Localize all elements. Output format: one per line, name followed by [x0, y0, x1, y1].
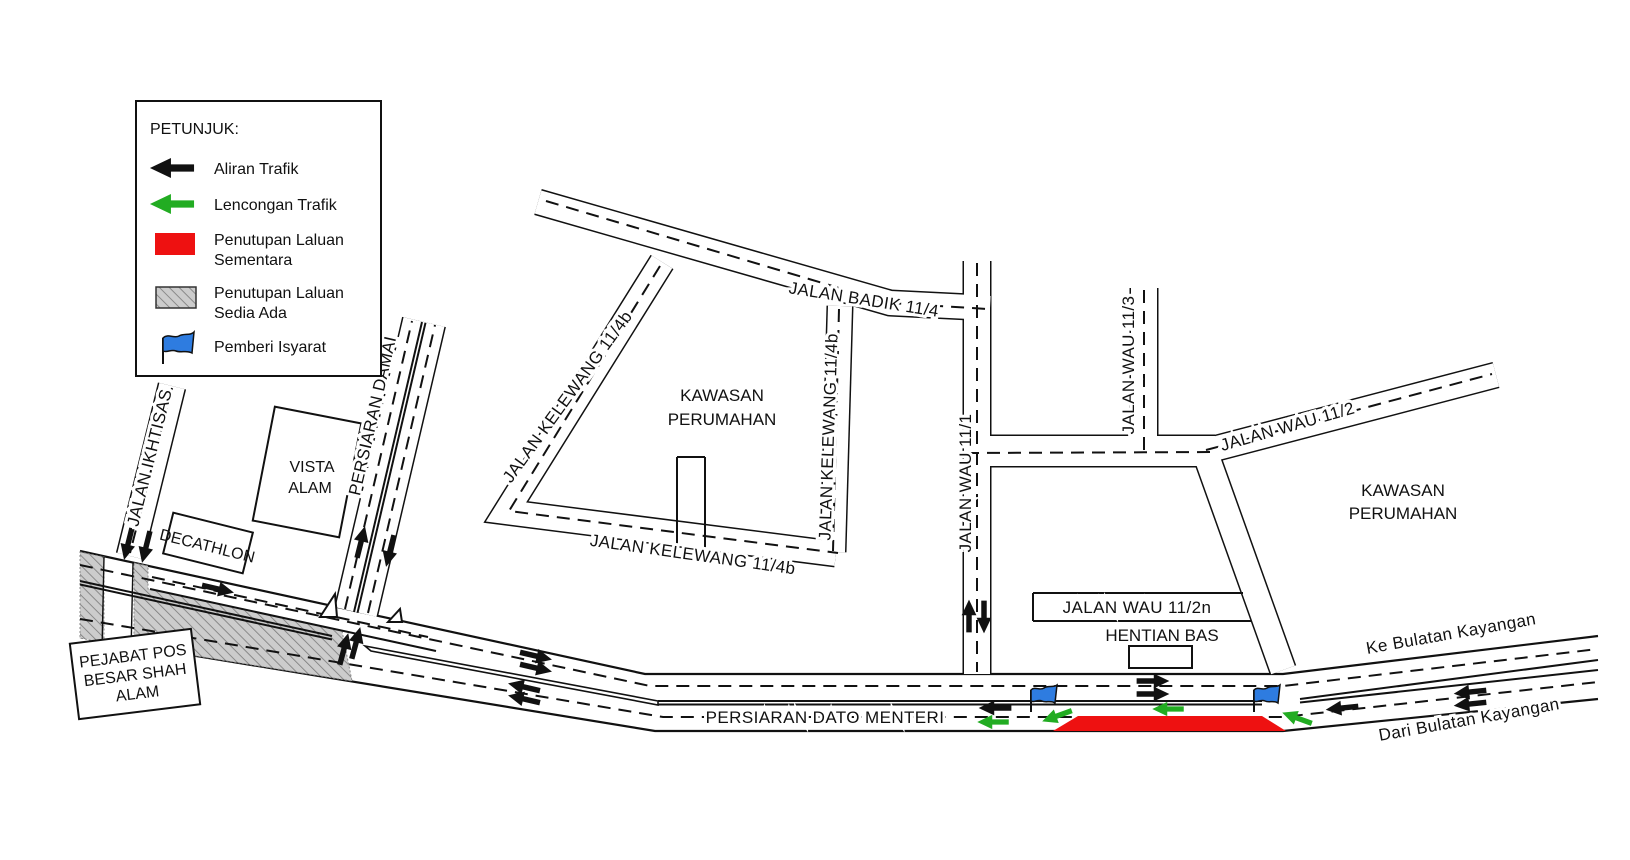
bus-stop-rect [1129, 646, 1192, 668]
label-jalan-wau-11-2n: JALAN WAU 11/2n [1063, 598, 1212, 617]
label-kawasan-perumahan-right-1: KAWASAN [1361, 481, 1445, 500]
legend-sedia-label-2: Sedia Ada [214, 305, 287, 322]
label-jalan-wau-11-3: JALAN WAU 11/3 [1119, 296, 1138, 435]
legend-sementara-label-1: Penutupan Laluan [214, 232, 344, 249]
label-vista-1: VISTA [289, 459, 334, 476]
traffic-diversion-map: JALAN BADIK 11/4 JALAN KELEWANG 11/4b JA… [0, 0, 1630, 860]
legend-sementara-label-2: Sementara [214, 252, 292, 269]
label-vista-2: ALAM [288, 480, 332, 497]
legend: PETUNJUK: Aliran Trafik Lencongan Trafik… [136, 101, 381, 376]
legend-title: PETUNJUK: [150, 121, 239, 138]
legend-aliran-label: Aliran Trafik [214, 161, 299, 178]
legend-lencongan-label: Lencongan Trafik [214, 197, 338, 214]
label-kawasan-perumahan-right-2: PERUMAHAN [1349, 504, 1458, 523]
label-kawasan-perumahan-left-1: KAWASAN [680, 386, 764, 405]
label-persiaran-dato-menteri: PERSIARAN DATO MENTERI [706, 708, 945, 727]
label-hentian-bas: HENTIAN BAS [1105, 626, 1218, 645]
label-kawasan-perumahan-left-2: PERUMAHAN [668, 410, 777, 429]
map-canvas: JALAN BADIK 11/4 JALAN KELEWANG 11/4b JA… [0, 0, 1630, 860]
legend-pemberi-label: Pemberi Isyarat [214, 339, 327, 356]
legend-sedia-label-1: Penutupan Laluan [214, 285, 344, 302]
legend-hatch-swatch [156, 287, 196, 308]
temporary-closure-zone [1053, 716, 1286, 731]
label-jalan-wau-11-1: JALAN WAU 11/1 [956, 414, 975, 553]
legend-red-swatch [155, 233, 195, 255]
